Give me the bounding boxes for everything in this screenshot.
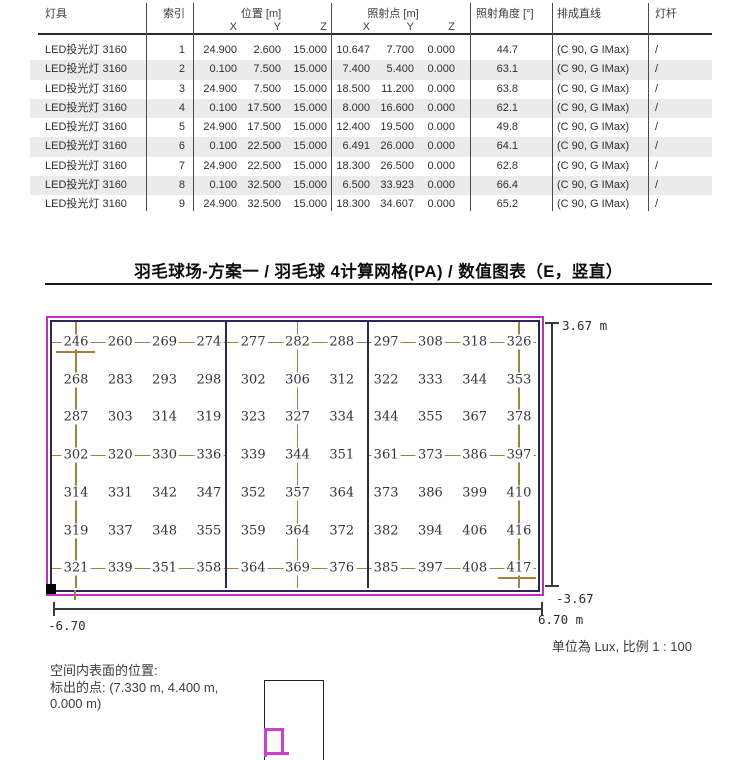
illuminance-value: 260	[106, 335, 135, 350]
table-cell-px: 0.100	[193, 137, 239, 156]
illuminance-value: 369	[283, 561, 312, 576]
table-row: LED投光灯 316040.10017.50015.0008.00016.600…	[30, 99, 712, 118]
title-rule	[45, 283, 712, 285]
illuminance-value: 323	[239, 410, 268, 425]
table-cell-luminaire: LED投光灯 3160	[30, 41, 146, 60]
service-line	[367, 322, 369, 588]
column-separator	[331, 3, 332, 211]
illuminance-value: 312	[327, 372, 356, 387]
table-cell-line: (C 90, G IMax)	[520, 80, 650, 99]
court-line-tick	[74, 590, 76, 600]
table-cell-angle: 49.8	[457, 118, 520, 137]
illuminance-value: 339	[239, 448, 268, 463]
illuminance-value: 306	[283, 372, 312, 387]
table-header-row: 灯具 索引 位置 [m] 照射点 [m] 照射角度 [°] 排成直线 灯杆	[30, 0, 712, 21]
table-cell-az: 0.000	[416, 80, 457, 99]
service-line	[225, 322, 227, 588]
table-cell-ax: 8.000	[329, 99, 372, 118]
col-header-aiming: 照射点 [m]	[329, 7, 457, 21]
court-line-tick	[498, 577, 536, 579]
table-cell-pz: 15.000	[283, 60, 329, 79]
illuminance-value: 283	[106, 372, 135, 387]
table-cell-pole: /	[650, 99, 712, 118]
illuminance-value: 308	[416, 335, 445, 350]
table-cell-line: (C 90, G IMax)	[520, 99, 650, 118]
table-cell-line: (C 90, G IMax)	[520, 176, 650, 195]
table-cell-az: 0.000	[416, 99, 457, 118]
table-cell-px: 0.100	[193, 99, 239, 118]
illuminance-value: 410	[505, 485, 534, 500]
column-separator	[470, 3, 471, 211]
table-cell-pole: /	[650, 118, 712, 137]
surface-location-line1: 空间内表面的位置:	[50, 663, 290, 680]
col-header-angle: 照射角度 [°]	[457, 7, 520, 21]
table-cell-pz: 15.000	[283, 99, 329, 118]
dimension-line-vertical	[551, 322, 553, 586]
table-cell-pole: /	[650, 137, 712, 156]
illuminance-value: 319	[194, 410, 223, 425]
table-cell-py: 7.500	[239, 60, 283, 79]
illuminance-value: 297	[372, 335, 401, 350]
table-cell-px: 24.900	[193, 195, 239, 214]
table-cell-angle: 63.1	[457, 60, 520, 79]
table-cell-index: 1	[146, 41, 193, 60]
dimension-tick	[545, 585, 559, 587]
illuminance-value: 357	[283, 485, 312, 500]
table-cell-py: 22.500	[239, 137, 283, 156]
col-header-line: 排成直线	[520, 7, 650, 21]
illuminance-value: 376	[327, 561, 356, 576]
illuminance-value: 277	[239, 335, 268, 350]
illuminance-value: 298	[194, 372, 223, 387]
illuminance-value: 320	[106, 448, 135, 463]
table-cell-az: 0.000	[416, 137, 457, 156]
table-cell-px: 0.100	[193, 60, 239, 79]
illuminance-value: 314	[62, 485, 91, 500]
table-cell-angle: 66.4	[457, 176, 520, 195]
illuminance-value: 330	[150, 448, 179, 463]
illuminance-value: 303	[106, 410, 135, 425]
table-cell-ax: 6.500	[329, 176, 372, 195]
dimension-tick	[545, 322, 559, 324]
illuminance-value: 326	[505, 335, 534, 350]
table-cell-line: (C 90, G IMax)	[520, 60, 650, 79]
illuminance-value: 327	[283, 410, 312, 425]
table-cell-py: 32.500	[239, 195, 283, 214]
table-row: LED投光灯 3160124.9002.60015.00010.6477.700…	[30, 41, 712, 60]
table-cell-px: 24.900	[193, 41, 239, 60]
table-cell-ax: 18.300	[329, 157, 372, 176]
illuminance-value: 322	[372, 372, 401, 387]
surface-location-line3: 0.000 m)	[50, 696, 290, 713]
table-cell-ax: 18.500	[329, 80, 372, 99]
illuminance-value: 282	[283, 335, 312, 350]
marked-point-symbol	[266, 752, 289, 755]
column-separator	[648, 3, 649, 211]
illuminance-value: 364	[327, 485, 356, 500]
table-cell-py: 2.600	[239, 41, 283, 60]
table-cell-py: 22.500	[239, 157, 283, 176]
illuminance-value: 331	[106, 485, 135, 500]
table-cell-angle: 44.7	[457, 41, 520, 60]
column-separator	[193, 3, 194, 211]
dimension-label-top: 3.67 m	[562, 318, 607, 333]
table-cell-ay: 26.500	[372, 157, 416, 176]
table-row: LED投光灯 316060.10022.50015.0006.49126.000…	[30, 137, 712, 156]
illuminance-value: 364	[239, 561, 268, 576]
table-cell-ax: 7.400	[329, 60, 372, 79]
illuminance-value: 353	[505, 372, 534, 387]
illuminance-value: 344	[372, 410, 401, 425]
table-cell-py: 17.500	[239, 99, 283, 118]
illuminance-value: 352	[239, 485, 268, 500]
table-cell-ay: 16.600	[372, 99, 416, 118]
illuminance-value: 293	[150, 372, 179, 387]
table-cell-luminaire: LED投光灯 3160	[30, 137, 146, 156]
illuminance-value: 334	[327, 410, 356, 425]
room-outline-map	[264, 680, 324, 760]
illuminance-value: 397	[505, 448, 534, 463]
illuminance-value: 416	[505, 523, 534, 538]
illuminance-value: 344	[460, 372, 489, 387]
illuminance-value: 359	[239, 523, 268, 538]
illuminance-value: 268	[62, 372, 91, 387]
column-separator	[552, 3, 553, 211]
dimension-label-left: -6.70	[48, 618, 86, 633]
court-line-tick	[56, 351, 95, 353]
dimension-tick	[53, 602, 55, 616]
table-cell-index: 8	[146, 176, 193, 195]
table-row: LED投光灯 3160524.90017.50015.00012.40019.5…	[30, 118, 712, 137]
table-cell-index: 7	[146, 157, 193, 176]
illuminance-value: 397	[416, 561, 445, 576]
illuminance-value: 347	[194, 485, 223, 500]
table-body: LED投光灯 3160124.9002.60015.00010.6477.700…	[30, 41, 712, 215]
table-cell-az: 0.000	[416, 118, 457, 137]
illuminance-value: 339	[106, 561, 135, 576]
table-cell-ax: 18.300	[329, 195, 372, 214]
illuminance-value: 302	[239, 372, 268, 387]
illuminance-value: 351	[327, 448, 356, 463]
illuminance-value: 337	[106, 523, 135, 538]
illuminance-value: 288	[327, 335, 356, 350]
table-cell-pole: /	[650, 176, 712, 195]
illuminance-value: 314	[150, 410, 179, 425]
table-cell-py: 7.500	[239, 80, 283, 99]
table-cell-ax: 12.400	[329, 118, 372, 137]
table-cell-index: 2	[146, 60, 193, 79]
illuminance-value: 373	[416, 448, 445, 463]
table-cell-angle: 64.1	[457, 137, 520, 156]
table-cell-az: 0.000	[416, 195, 457, 214]
table-cell-index: 3	[146, 80, 193, 99]
illuminance-value: 319	[62, 523, 91, 538]
column-separator	[146, 3, 147, 211]
table-cell-az: 0.000	[416, 157, 457, 176]
illuminance-value: 302	[62, 448, 91, 463]
table-cell-pole: /	[650, 157, 712, 176]
table-cell-pz: 15.000	[283, 176, 329, 195]
col-header-pole: 灯杆	[650, 7, 712, 21]
illuminance-value: 385	[372, 561, 401, 576]
table-cell-ay: 34.607	[372, 195, 416, 214]
table-cell-line: (C 90, G IMax)	[520, 118, 650, 137]
table-cell-ay: 33.923	[372, 176, 416, 195]
table-cell-index: 6	[146, 137, 193, 156]
illuminance-value: 378	[505, 410, 534, 425]
table-cell-py: 17.500	[239, 118, 283, 137]
table-cell-line: (C 90, G IMax)	[520, 157, 650, 176]
illuminance-value: 364	[283, 523, 312, 538]
illuminance-value: 269	[150, 335, 179, 350]
table-cell-pz: 15.000	[283, 80, 329, 99]
table-cell-angle: 65.2	[457, 195, 520, 214]
table-cell-pole: /	[650, 80, 712, 99]
table-cell-ay: 11.200	[372, 80, 416, 99]
table-cell-pz: 15.000	[283, 41, 329, 60]
table-cell-luminaire: LED投光灯 3160	[30, 80, 146, 99]
table-cell-pz: 15.000	[283, 137, 329, 156]
table-cell-angle: 63.8	[457, 80, 520, 99]
table-row: LED投光灯 316080.10032.50015.0006.50033.923…	[30, 176, 712, 195]
table-cell-luminaire: LED投光灯 3160	[30, 118, 146, 137]
table-row: LED投光灯 3160324.9007.50015.00018.50011.20…	[30, 80, 712, 99]
header-rule	[38, 33, 712, 35]
illuminance-value: 408	[460, 561, 489, 576]
illuminance-value: 399	[460, 485, 489, 500]
marked-point-symbol	[281, 728, 284, 753]
illuminance-value: 355	[194, 523, 223, 538]
col-header-luminaire: 灯具	[30, 7, 146, 21]
table-cell-luminaire: LED投光灯 3160	[30, 60, 146, 79]
table-cell-px: 24.900	[193, 80, 239, 99]
dimension-label-right: 6.70 m	[538, 612, 583, 627]
table-cell-line: (C 90, G IMax)	[520, 195, 650, 214]
table-cell-az: 0.000	[416, 41, 457, 60]
illuminance-value: 406	[460, 523, 489, 538]
table-cell-ay: 5.400	[372, 60, 416, 79]
surface-location-text: 空间内表面的位置: 标出的点: (7.330 m, 4.400 m, 0.000…	[50, 663, 290, 713]
illuminance-value: 372	[327, 523, 356, 538]
table-cell-az: 0.000	[416, 176, 457, 195]
table-cell-luminaire: LED投光灯 3160	[30, 157, 146, 176]
table-cell-ay: 26.000	[372, 137, 416, 156]
illuminance-value: 336	[194, 448, 223, 463]
table-cell-px: 0.100	[193, 176, 239, 195]
illuminance-value: 367	[460, 410, 489, 425]
table-row: LED投光灯 316020.1007.50015.0007.4005.4000.…	[30, 60, 712, 79]
illuminance-value: 318	[460, 335, 489, 350]
table-row: LED投光灯 3160724.90022.50015.00018.30026.5…	[30, 157, 712, 176]
illuminance-value: 342	[150, 485, 179, 500]
table-cell-index: 4	[146, 99, 193, 118]
table-cell-pz: 15.000	[283, 118, 329, 137]
illuminance-value: 358	[194, 561, 223, 576]
table-cell-luminaire: LED投光灯 3160	[30, 195, 146, 214]
illuminance-value: 246	[62, 335, 91, 350]
illuminance-value: 348	[150, 523, 179, 538]
table-cell-line: (C 90, G IMax)	[520, 137, 650, 156]
illuminance-value: 333	[416, 372, 445, 387]
illuminance-value: 274	[194, 335, 223, 350]
table-cell-az: 0.000	[416, 60, 457, 79]
table-cell-pz: 15.000	[283, 157, 329, 176]
surface-location-line2: 标出的点: (7.330 m, 4.400 m,	[50, 680, 290, 697]
table-cell-index: 5	[146, 118, 193, 137]
table-cell-pole: /	[650, 60, 712, 79]
table-cell-angle: 62.1	[457, 99, 520, 118]
table-row: LED投光灯 3160924.90032.50015.00018.30034.6…	[30, 195, 712, 214]
illuminance-value: 382	[372, 523, 401, 538]
col-header-index: 索引	[146, 7, 193, 21]
table-cell-pz: 15.000	[283, 195, 329, 214]
table-cell-index: 9	[146, 195, 193, 214]
unit-scale-note: 单位為 Lux, 比例 1 : 100	[392, 636, 692, 655]
table-cell-ay: 19.500	[372, 118, 416, 137]
col-header-position: 位置 [m]	[193, 7, 329, 21]
table-cell-luminaire: LED投光灯 3160	[30, 176, 146, 195]
illuminance-value: 386	[460, 448, 489, 463]
table-cell-line: (C 90, G IMax)	[520, 41, 650, 60]
illuminance-value: 417	[505, 561, 534, 576]
origin-marker	[46, 584, 56, 594]
table-cell-px: 24.900	[193, 118, 239, 137]
table-cell-py: 32.500	[239, 176, 283, 195]
table-cell-pole: /	[650, 41, 712, 60]
page-title: 羽毛球场-方案一 / 羽毛球 4计算网格(PA) / 数值图表（E，竖直）	[45, 258, 712, 282]
illuminance-value: 361	[372, 448, 401, 463]
table-cell-px: 24.900	[193, 157, 239, 176]
table-cell-pole: /	[650, 195, 712, 214]
illuminance-value: 355	[416, 410, 445, 425]
table-cell-ay: 7.700	[372, 41, 416, 60]
table-cell-luminaire: LED投光灯 3160	[30, 99, 146, 118]
table-cell-ax: 10.647	[329, 41, 372, 60]
illuminance-value: 386	[416, 485, 445, 500]
illuminance-value: 394	[416, 523, 445, 538]
dimension-line-horizontal	[53, 608, 542, 610]
illuminance-value: 287	[62, 410, 91, 425]
illuminance-value: 373	[372, 485, 401, 500]
illuminance-value: 351	[150, 561, 179, 576]
value-grid-chart: 2462602692742772822882973083183262682832…	[50, 320, 540, 592]
dimension-label-bottom: -3.67	[556, 591, 594, 606]
table-cell-ax: 6.491	[329, 137, 372, 156]
table-cell-angle: 62.8	[457, 157, 520, 176]
illuminance-value: 344	[283, 448, 312, 463]
illuminance-value: 321	[62, 561, 91, 576]
